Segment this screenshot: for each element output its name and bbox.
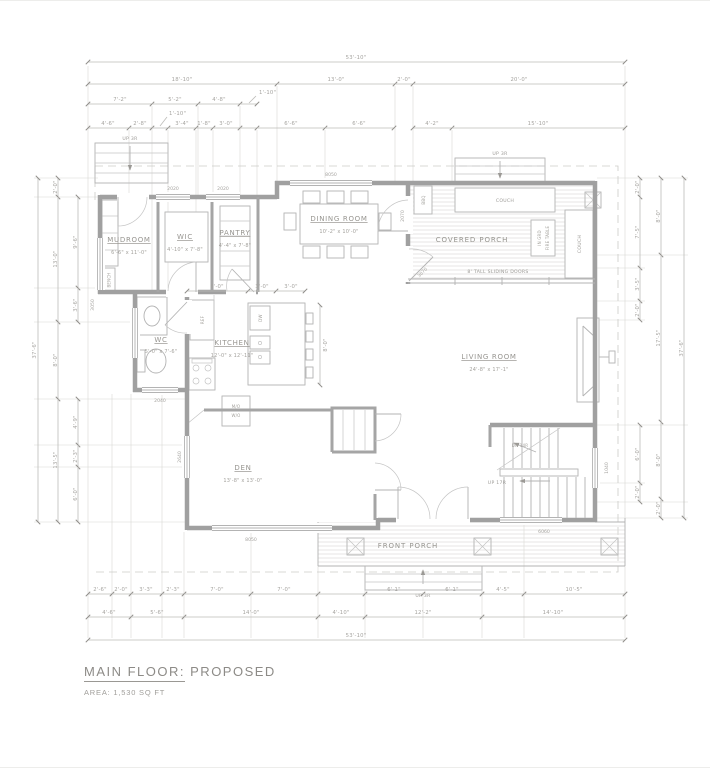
up-17r-label: UP 17R	[488, 480, 507, 486]
wo-label: W/O	[231, 413, 240, 418]
dim: 7'-0"	[210, 587, 224, 593]
dim: 5'-2"	[168, 97, 182, 103]
dim: 3'-0"	[284, 284, 298, 290]
pantry-window: 2020	[206, 186, 240, 202]
living-room-dims: 24'-8" x 17'-1"	[469, 367, 508, 373]
dim: 3'-5"	[635, 277, 641, 291]
den-dims: 13'-8" x 13'-0"	[223, 478, 262, 484]
dim: 18'-10"	[172, 77, 193, 83]
kitchen-fixtures: REF DW M/O W/O	[187, 295, 313, 426]
stair-window-tag: 6060	[538, 529, 550, 535]
dim: 2'-0"	[635, 180, 641, 194]
dim: 6'-6"	[352, 121, 366, 127]
front-porch-label: FRONT PORCH	[378, 542, 438, 550]
drawing-title-suffix: PROPOSED	[190, 664, 276, 679]
dim: 53'-10"	[346, 633, 367, 639]
den-side-window: 2640	[177, 436, 192, 478]
pantry-dims: 4'-4" x 7'-8"	[219, 243, 251, 249]
wic-dims: 4'-10" x 7'-8"	[167, 247, 203, 253]
fire-table	[531, 220, 555, 256]
den-front-window-tag: 8050	[245, 537, 257, 543]
dim: 17'-5"	[656, 329, 662, 346]
dim: 2'-0"	[53, 180, 59, 194]
wic-window: 2020	[156, 186, 190, 202]
dim: 4'-9"	[73, 415, 79, 429]
drawing-area: AREA: 1,530 SQ FT	[84, 688, 276, 697]
mudroom-window: 3050	[90, 238, 105, 311]
covered-porch-steps: UP 3R	[455, 151, 545, 183]
dim: 2'-3"	[166, 587, 180, 593]
dim: 7'-2"	[113, 97, 127, 103]
dim: 13'-0"	[53, 250, 59, 267]
dim: 2'-3"	[73, 449, 79, 463]
den-front-window: 8050	[212, 523, 332, 543]
dining-dims: 10'-2" x 10'-0"	[319, 229, 358, 235]
pantry-window-tag: 2020	[217, 186, 229, 192]
living-room-label: LIVING ROOM	[461, 353, 516, 361]
dim: 7'-0"	[277, 587, 291, 593]
dim: 3'-0"	[255, 284, 269, 290]
dining-table	[300, 204, 378, 244]
kitchen-dims: 12'-0" x 12'-11"	[211, 353, 254, 359]
dim: 6'-1"	[445, 587, 459, 593]
dn-14r-label: DN 14R	[512, 443, 528, 448]
wic-label: WIC	[177, 233, 193, 241]
couch-side-label: COUCH	[577, 235, 583, 253]
dim: 37'-6"	[32, 341, 38, 358]
back-entry-steps: UP 3R	[95, 136, 168, 183]
closet-doors	[343, 410, 401, 490]
dim: 10'-5"	[565, 587, 582, 593]
dim: 3'-0"	[219, 121, 233, 127]
mudroom-window-tag: 3050	[90, 299, 96, 311]
dim: 6'-6"	[284, 121, 298, 127]
couch-top-label: COUCH	[496, 198, 514, 204]
title-block: MAIN FLOOR: PROPOSED AREA: 1,530 SQ FT	[84, 664, 276, 697]
dim: 3'-4"	[175, 121, 189, 127]
fire-table-label-2: FIRE TABLE	[545, 226, 550, 251]
wc-side-window	[130, 308, 140, 358]
dim: 4'-5"	[496, 587, 510, 593]
bench-label: BENCH	[107, 272, 112, 287]
pantry-label: PANTRY	[220, 229, 251, 237]
dim: 13'-0"	[327, 77, 344, 83]
dim: 53'-10"	[346, 55, 367, 61]
dining-label: DINING ROOM	[310, 215, 367, 223]
den-side-window-tag: 2640	[177, 451, 183, 463]
dim: 12'-2"	[414, 610, 431, 616]
dim: 7'-5"	[635, 225, 641, 239]
dim: 6'-0"	[210, 284, 224, 290]
up-3r-label-porch: UP 3R	[492, 151, 508, 157]
sink-basin-1	[250, 336, 270, 349]
ref-label: REF	[200, 315, 205, 324]
porch-door-tag: 2070	[400, 210, 406, 222]
dim: 3'-6"	[73, 298, 79, 312]
den-label: DEN	[234, 464, 251, 472]
dim: 8'-0"	[656, 453, 662, 467]
mudroom-dims: 6'-6" x 11'-0"	[111, 250, 147, 256]
drawing-title-underlined: MAIN FLOOR:	[84, 664, 185, 682]
dimensions-left: 37'-6" 2'-0" 13'-0" 8'-0" 13'-5" 9'-6" 3…	[32, 178, 79, 522]
up-3r-label-stoop: UP 3R	[122, 136, 138, 142]
drawing-title: MAIN FLOOR: PROPOSED	[84, 664, 276, 679]
dim: 2'-0"	[397, 77, 411, 83]
dim: 20'-0"	[510, 77, 527, 83]
wc-fixtures	[137, 297, 167, 373]
wic-door	[166, 262, 198, 297]
mudroom-label: MUDROOM	[107, 236, 150, 244]
dim: 4'-6"	[101, 121, 115, 127]
dim: 9'-6"	[73, 235, 79, 249]
mo-label: M/O	[232, 404, 241, 409]
fire-table-label-1: IN GRD	[537, 230, 542, 246]
back-entry-door	[117, 193, 149, 226]
dim: 2'-8"	[133, 121, 147, 127]
dim: 1'-10"	[169, 111, 186, 117]
dim: 13'-5"	[53, 451, 59, 468]
wc-dims: 5'-0" x 7'-6"	[145, 349, 177, 355]
dim: 14'-0"	[242, 610, 259, 616]
dim: 4'-6"	[102, 610, 116, 616]
dim: 6'-0"	[73, 487, 79, 501]
dim: 37'-6"	[679, 339, 685, 356]
dim: 14'-10"	[543, 610, 564, 616]
dining-table-set	[284, 191, 391, 258]
sheet-top-edge	[0, 0, 710, 1]
stair-side-window: 1040	[590, 448, 610, 488]
floor-plan-drawing: UP 3R UP 3R UP 3R BENCH BBQ COUCH COUCH …	[0, 0, 710, 768]
dimensions-top: 53'-10" 18'-10" 13'-0" 2'-0" 20'-0" 7'-2…	[88, 55, 625, 128]
covered-porch-label: COVERED PORCH	[436, 236, 509, 244]
dining-window-tag: 8050	[325, 172, 337, 178]
dim: 3'-3"	[139, 587, 153, 593]
front-entry-double-doors	[396, 487, 470, 525]
dimensions-bottom: 2'-6" 2'-0" 3'-3" 2'-3" 7'-0" 7'-0" 6'-1…	[88, 587, 625, 640]
kitchen-label: KITCHEN	[214, 339, 249, 347]
dim: 6'-0"	[635, 447, 641, 461]
wc-door	[165, 300, 192, 334]
dim: 5'-6"	[150, 610, 164, 616]
dining-window: 8050	[290, 172, 372, 188]
dim: 2'-0"	[635, 303, 641, 317]
dim: 1'-10"	[259, 90, 276, 96]
dim: 8'-0"	[323, 338, 329, 352]
staircase: UP 17R DN 14R	[488, 428, 585, 518]
dim: 4'-8"	[212, 97, 226, 103]
dim: 4'-10"	[332, 610, 349, 616]
dim: 2'-0"	[114, 587, 128, 593]
dim: 4'-2"	[425, 121, 439, 127]
dim: 6'-1"	[387, 587, 401, 593]
wc-label: WC	[154, 336, 167, 344]
dim: 8'-0"	[53, 353, 59, 367]
stair-side-window-tag: 1040	[604, 462, 610, 474]
dim: 15'-10"	[528, 121, 549, 127]
bbq-label: BBQ	[421, 195, 426, 204]
wc-window-tag: 2040	[154, 398, 166, 404]
dim: 2'-0"	[635, 485, 641, 499]
dw-label: DW	[258, 314, 263, 321]
dim: 2'-6"	[93, 587, 107, 593]
sliding-doors-label: 8' TALL SLIDING DOORS	[467, 269, 528, 275]
floor-plan-sheet: UP 3R UP 3R UP 3R BENCH BBQ COUCH COUCH …	[0, 0, 710, 768]
wc-vanity	[137, 297, 167, 335]
dim: 8'-0"	[656, 209, 662, 223]
dim: 1'-8"	[197, 121, 211, 127]
dim: 2'-0"	[656, 501, 662, 515]
wc-window: 2040	[142, 385, 178, 404]
wic-window-tag: 2020	[167, 186, 179, 192]
dimensions-right: 2'-0" 7'-5" 3'-5" 2'-0" 6'-0" 2'-0" 8'-0…	[635, 178, 685, 518]
